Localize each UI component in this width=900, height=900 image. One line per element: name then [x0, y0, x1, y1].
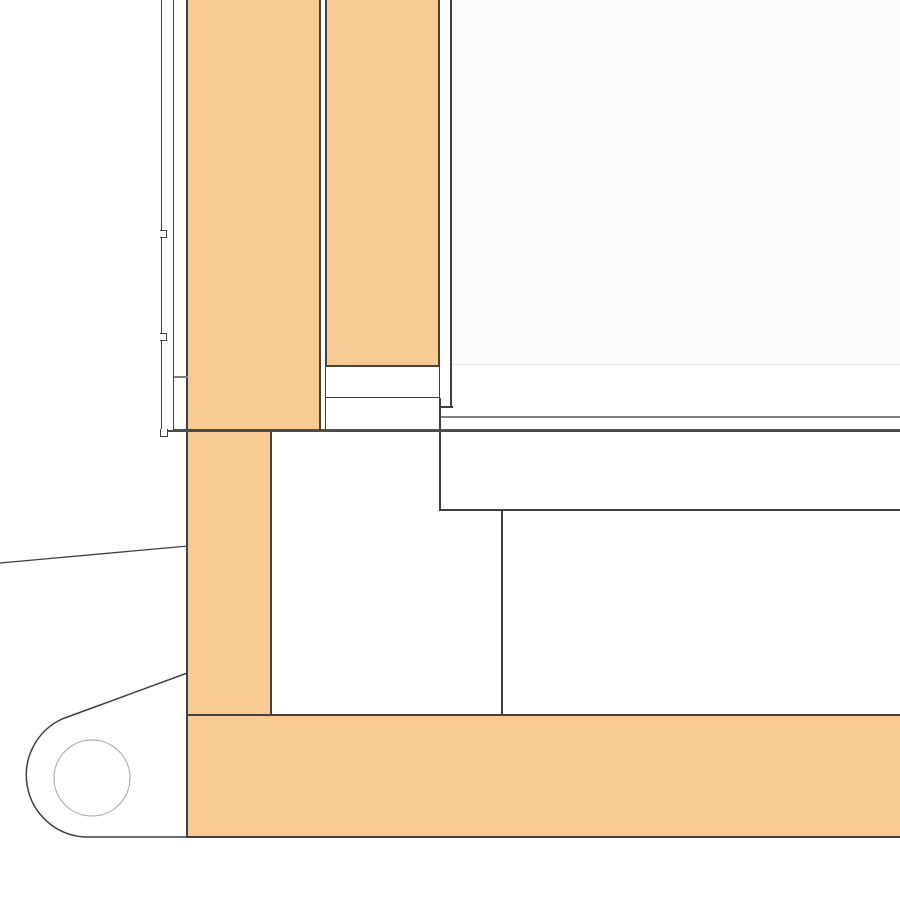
- panel-edge-line: [450, 0, 452, 408]
- siding-joint-lower: [160, 333, 167, 341]
- siding-drip-foot: [160, 429, 168, 437]
- bottom-plate-block-upper: [325, 367, 440, 398]
- subfloor-line: [165, 429, 900, 432]
- bottom-plate-block-lower: [325, 398, 439, 429]
- trailer-deck-beam: [186, 714, 900, 838]
- rim-edge-line: [439, 398, 441, 511]
- finish-floor-line: [441, 416, 900, 418]
- detail-drawing-canvas: [0, 0, 900, 900]
- siding-joint-upper: [160, 230, 167, 238]
- outer-wall-stud: [186, 0, 321, 432]
- floor-framing-bottom-line: [439, 509, 900, 511]
- joist-edge-line: [501, 511, 503, 716]
- trim-step-line: [441, 406, 453, 408]
- tongue-beam-leader-line: [0, 546, 188, 563]
- rainscreen-gap-line: [174, 376, 188, 378]
- interior-wall-panel: [452, 0, 900, 365]
- rim-post-member: [186, 429, 272, 716]
- inner-wall-stud: [325, 0, 440, 367]
- siding-board: [161, 0, 174, 430]
